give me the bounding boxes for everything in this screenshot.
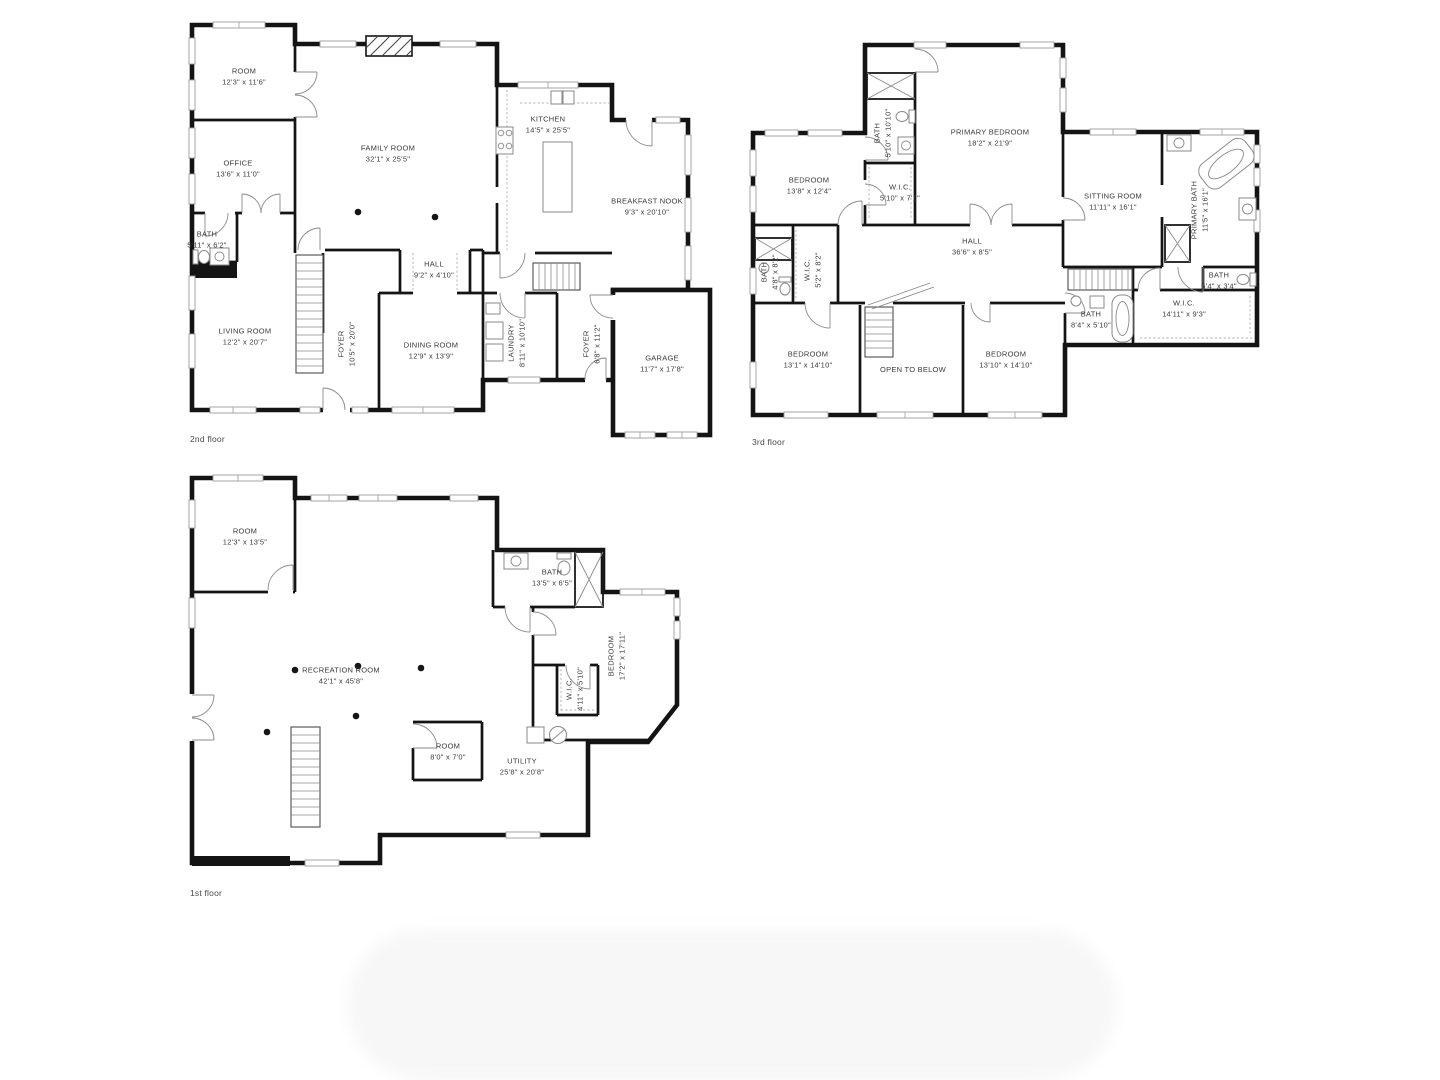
floor1-outer-walls [192,478,677,863]
bathtub-icon [1112,295,1133,342]
floor3-outer-walls [753,45,1257,415]
floor-2-plan [189,22,710,438]
bath-sink-icon [898,137,914,154]
bath-sink-icon [210,248,229,265]
stove-icon [496,127,513,154]
kitchen-sink-icon [551,91,574,104]
floorplan-canvas [0,0,1440,1080]
chimney-hatch [366,36,412,56]
sink-icon [759,263,769,273]
garage-outline [613,290,710,435]
floorplan-page: 2nd floor 3rd floor 1st floor ROOM12'3" … [0,0,1440,1080]
kitchen-island [543,142,572,212]
toilet-icon [1237,273,1256,286]
thick-wall-block [192,856,290,866]
toilet-icon [193,250,210,264]
toilet-icon [779,277,791,295]
floor-3-plan [750,42,1260,418]
toilet-icon [896,110,915,123]
floor1-openings [188,694,196,741]
bath-sink-icon [504,553,528,569]
furnace-icon [527,727,544,743]
hall-stairs-icon [1068,269,1132,290]
rec-room-stairs-icon [291,727,320,827]
basement-stairs-icon [533,263,580,290]
floor-1-plan [188,475,680,866]
water-heater-icon [550,727,567,744]
laundry-machines-icon [486,303,503,361]
foyer-stairs-icon [296,255,323,373]
toilet-icon [557,553,571,575]
